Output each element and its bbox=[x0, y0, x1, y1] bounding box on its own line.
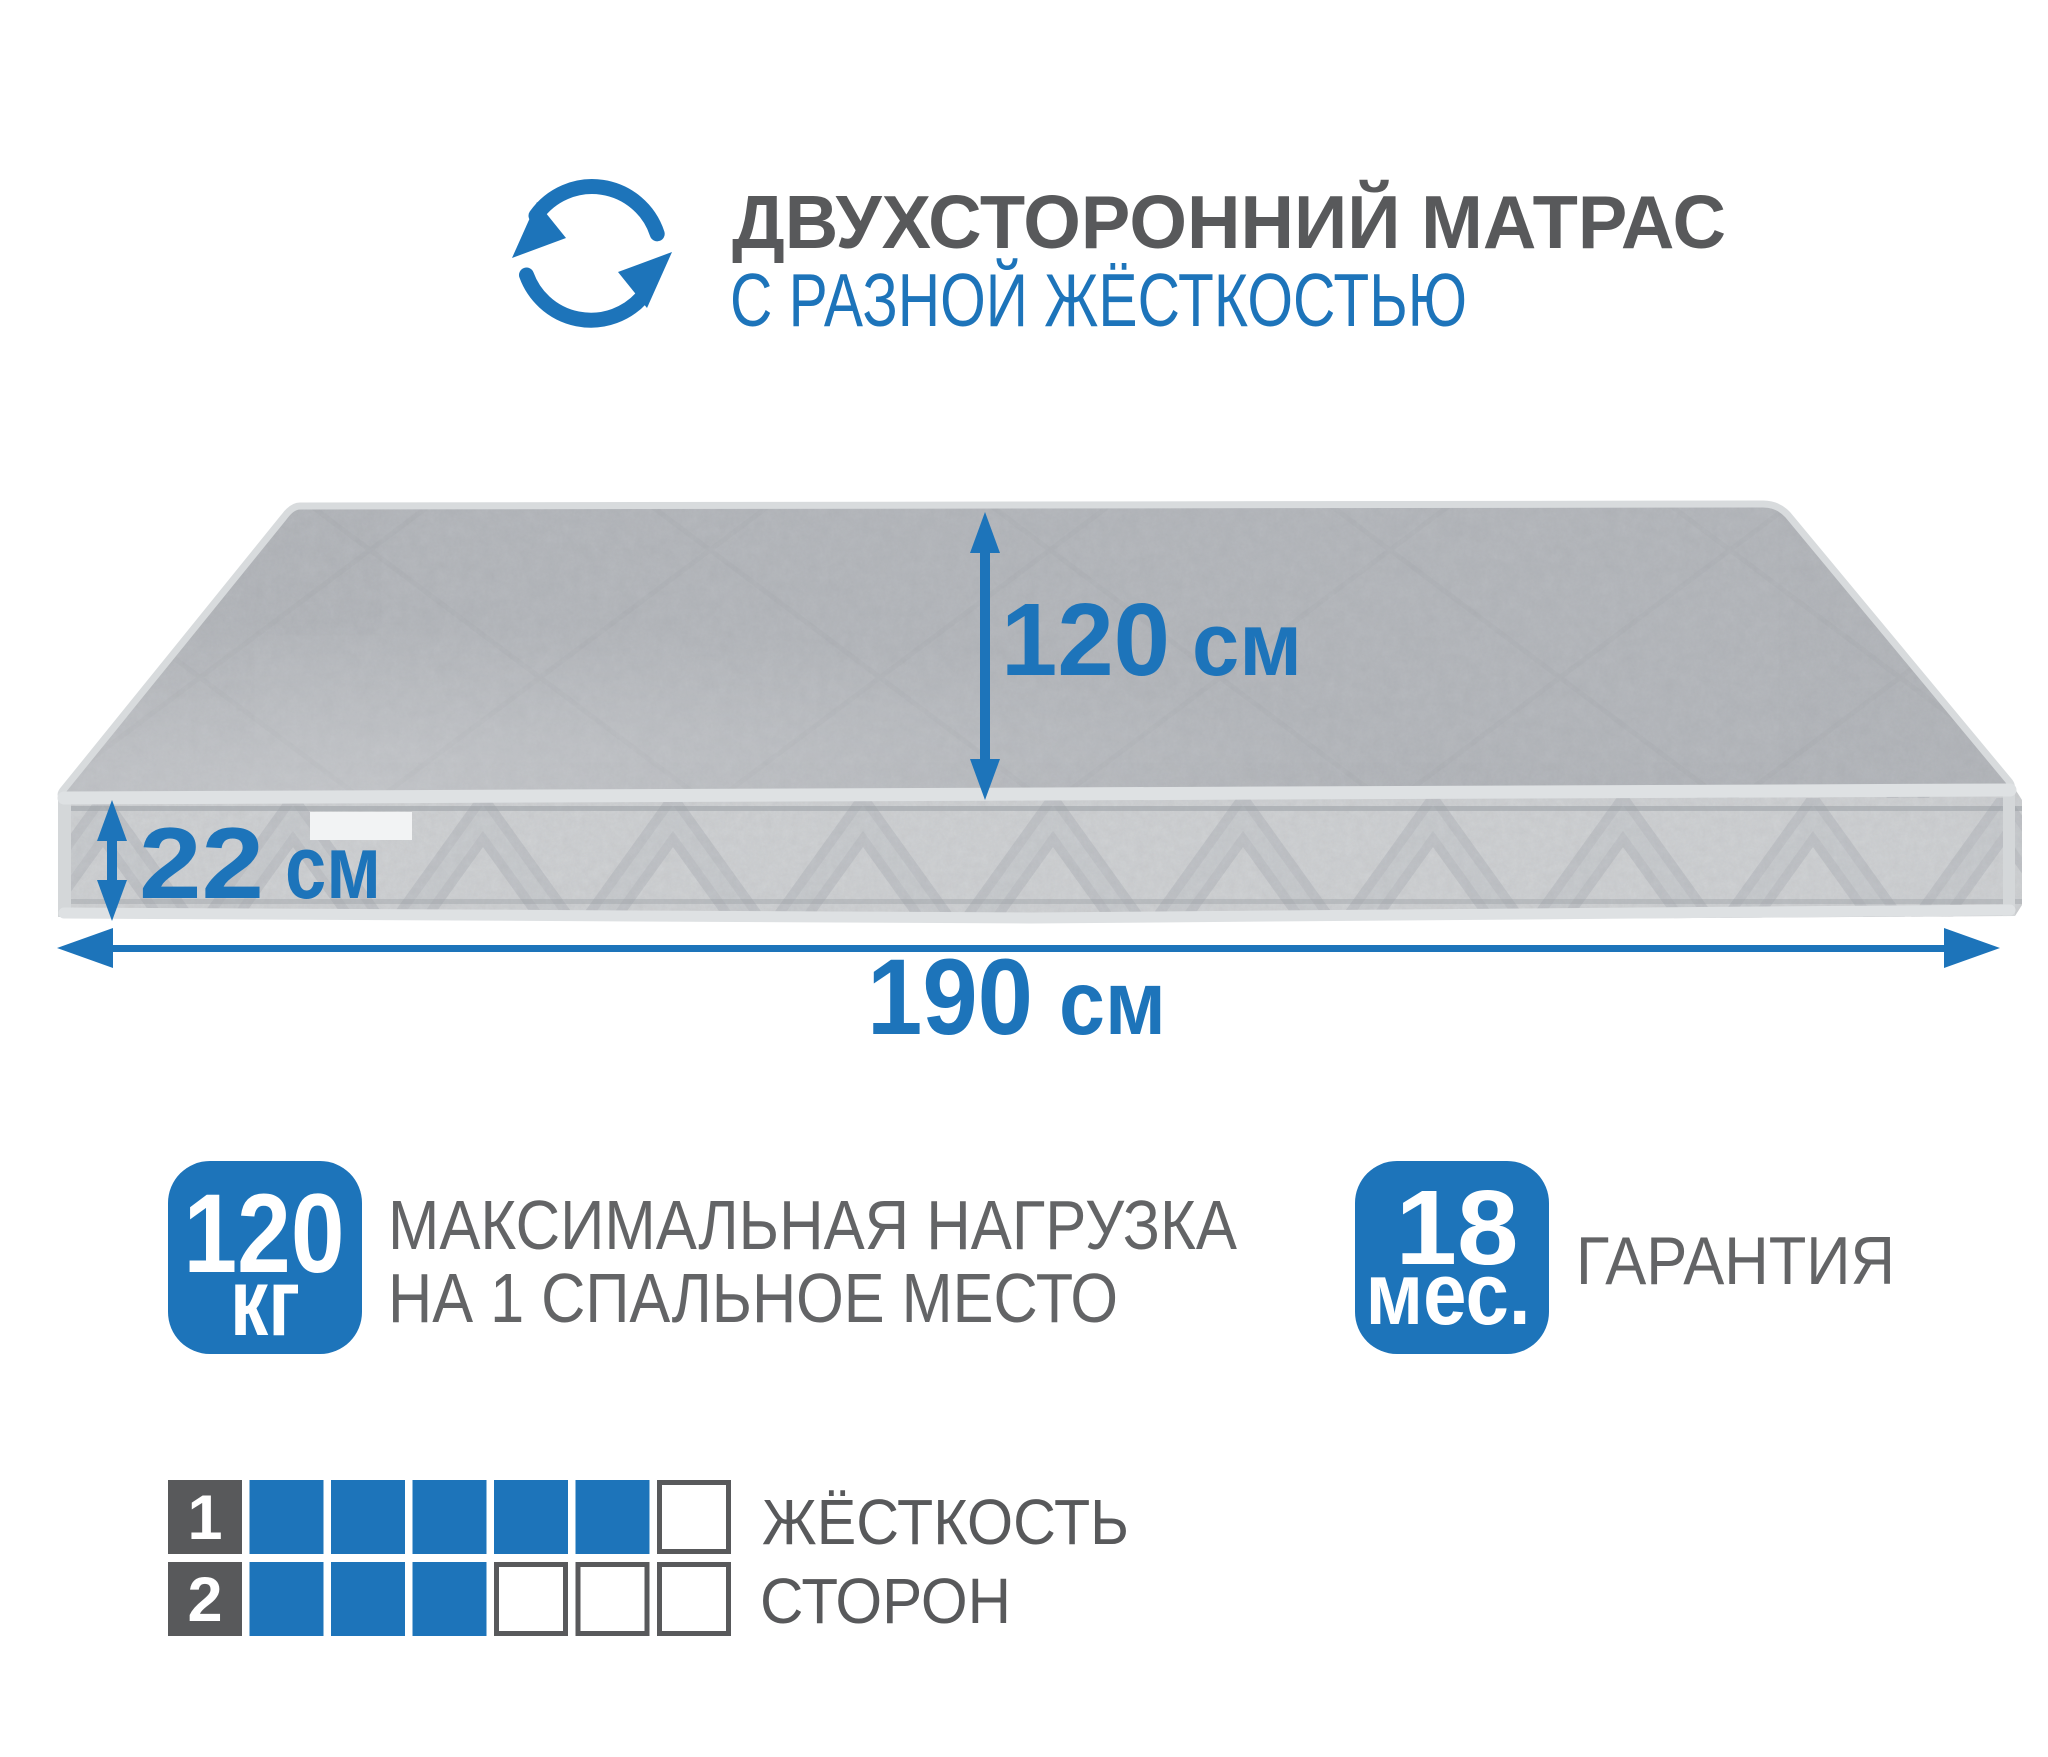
svg-text:С РАЗНОЙ ЖЁСТКОСТЬЮ: С РАЗНОЙ ЖЁСТКОСТЬЮ bbox=[730, 258, 1467, 342]
svg-text:ГАРАНТИЯ: ГАРАНТИЯ bbox=[1576, 1223, 1895, 1299]
svg-text:ЖЁСТКОСТЬ: ЖЁСТКОСТЬ bbox=[762, 1486, 1129, 1558]
svg-text:ДВУХСТОРОННИЙ МАТРАС: ДВУХСТОРОННИЙ МАТРАС bbox=[732, 180, 1726, 264]
svg-text:2: 2 bbox=[187, 1565, 222, 1635]
svg-text:мес.: мес. bbox=[1366, 1244, 1531, 1343]
svg-text:1: 1 bbox=[187, 1483, 222, 1553]
svg-text:НА 1 СПАЛЬНОЕ МЕСТО: НА 1 СПАЛЬНОЕ МЕСТО bbox=[388, 1259, 1118, 1337]
svg-text:см: см bbox=[285, 818, 381, 918]
svg-text:СТОРОН: СТОРОН bbox=[760, 1565, 1011, 1637]
svg-text:22: 22 bbox=[139, 808, 264, 920]
svg-text:см: см bbox=[1059, 953, 1166, 1054]
svg-text:190: 190 bbox=[867, 936, 1033, 1057]
svg-text:кг: кг bbox=[230, 1249, 300, 1356]
svg-text:см: см bbox=[1192, 595, 1302, 695]
svg-text:МАКСИМАЛЬНАЯ НАГРУЗКА: МАКСИМАЛЬНАЯ НАГРУЗКА bbox=[388, 1186, 1237, 1264]
svg-text:120: 120 bbox=[1001, 582, 1170, 697]
